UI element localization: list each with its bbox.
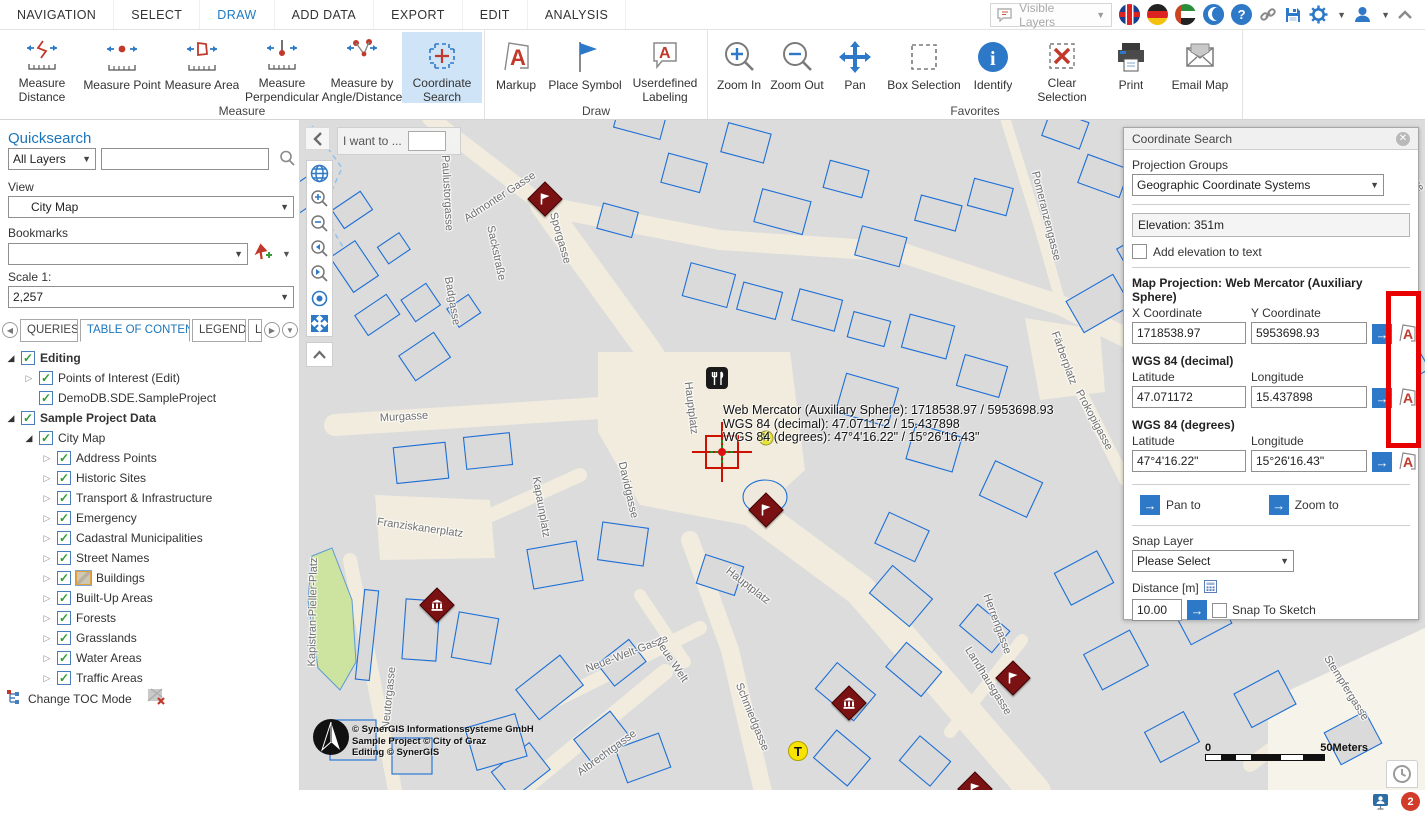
language-arabic-flag-icon[interactable] <box>1175 4 1196 25</box>
toc-item-label: Transport & Infrastructure <box>76 491 212 505</box>
toc-item-label: DemoDB.SDE.SampleProject <box>58 391 216 405</box>
scalebar-bar <box>1205 754 1325 761</box>
scale-bar: 0 50Meters <box>1205 742 1425 761</box>
menu-item-analysis[interactable]: ANALYSIS <box>528 0 626 29</box>
layers-bubble-icon <box>997 8 1013 22</box>
toolbar-scroll-up-button[interactable] <box>306 342 333 367</box>
chevron-down-icon: ▼ <box>1364 180 1379 190</box>
layer-checkbox[interactable]: ✓ <box>57 511 71 525</box>
toc-item-street-names[interactable]: ▷✓Street Names <box>0 548 300 568</box>
session-user-icon[interactable] <box>1372 793 1389 813</box>
toc-item-cadastral-municipalities[interactable]: ▷✓Cadastral Municipalities <box>0 528 300 548</box>
toc-item-label: Forests <box>76 611 116 625</box>
distance-label: Distance [m] <box>1132 581 1199 595</box>
tab-list-icon[interactable]: ▼ <box>282 322 298 338</box>
measure-point-button[interactable]: Measure Point <box>82 32 162 103</box>
layer-checkbox[interactable]: ✓ <box>57 531 71 545</box>
layer-checkbox[interactable]: ✓ <box>21 411 35 425</box>
pan-button[interactable]: Pan <box>826 32 884 103</box>
snap-to-sketch-label: Snap To Sketch <box>1232 603 1316 617</box>
change-toc-mode-button[interactable]: Change TOC Mode <box>6 688 166 709</box>
measure-area-icon <box>185 38 219 76</box>
zoom-in-lens-icon[interactable] <box>307 186 332 211</box>
menu-item-draw[interactable]: DRAW <box>200 0 274 29</box>
ribbon-button-label: Coordinate Search <box>402 76 482 103</box>
toc-item-label: Built-Up Areas <box>76 591 153 605</box>
scale-select[interactable]: 2,257 ▼ <box>8 286 294 308</box>
tab-scroll-right-icon[interactable]: ▶ <box>264 322 280 338</box>
measure-angle-icon <box>345 38 379 74</box>
y-coordinate-label: Y Coordinate <box>1251 306 1367 320</box>
toc-item-label: Editing <box>40 351 81 365</box>
bookmarks-select[interactable]: ▼ <box>8 243 248 265</box>
panel-header: Coordinate Search ✕ <box>1124 128 1418 150</box>
tab-queries[interactable]: QUERIES <box>20 319 78 342</box>
expand-arrow-icon[interactable]: ▷ <box>24 373 34 384</box>
identify-icon: i <box>976 38 1010 76</box>
ribbon-button-label: Zoom In <box>717 78 761 92</box>
chevron-down-icon[interactable]: ▼ <box>1337 10 1346 20</box>
settings-gear-icon[interactable] <box>1309 5 1328 24</box>
toc-item-water-areas[interactable]: ▷✓Water Areas <box>0 648 300 668</box>
chevron-down-icon: ▼ <box>228 249 243 259</box>
layer-checkbox[interactable]: ✓ <box>57 591 71 605</box>
ribbon-button-label: Markup <box>496 78 536 92</box>
toc-item-label: Emergency <box>76 511 137 525</box>
zoom-out-button[interactable]: Zoom Out <box>768 32 826 103</box>
layer-checkbox[interactable]: ✓ <box>57 651 71 665</box>
latitude-label: Latitude <box>1132 434 1246 448</box>
zoom-out-lens-icon[interactable] <box>307 211 332 236</box>
tab-legend[interactable]: LEGEND <box>192 319 246 342</box>
toc-item-traffic-areas[interactable]: ▷✓Traffic Areas <box>0 668 300 688</box>
clear-selection-icon <box>1045 38 1079 74</box>
expand-arrow-icon[interactable]: ▷ <box>42 513 52 524</box>
ribbon-group-measure: Measure Distance Measure Point Measure A… <box>0 30 485 119</box>
toc-item-emergency[interactable]: ▷✓Emergency <box>0 508 300 528</box>
tab-truncated[interactable]: L <box>248 319 262 342</box>
link-icon[interactable] <box>1259 6 1277 24</box>
clear-toc-disabled-icon <box>146 688 166 709</box>
toc-item-label: Buildings <box>96 571 145 585</box>
tab-table-of-content[interactable]: TABLE OF CONTENT <box>80 319 190 342</box>
ribbon-button-label: Measure Point <box>83 78 160 92</box>
layer-swatch <box>76 571 91 585</box>
measure-area-button[interactable]: Measure Area <box>162 32 242 103</box>
projection-groups-select[interactable]: Geographic Coordinate Systems ▼ <box>1132 174 1384 196</box>
zoom-to-button[interactable]: → Zoom to <box>1269 495 1339 515</box>
userdefined-labeling-icon: A <box>648 38 682 74</box>
collapse-ribbon-icon[interactable] <box>1397 10 1413 20</box>
expand-arrow-icon[interactable]: ▷ <box>42 533 52 544</box>
markup-button[interactable]: A Markup <box>487 32 545 103</box>
toc-item-label: Historic Sites <box>76 471 146 485</box>
distance-input[interactable] <box>1132 599 1182 621</box>
toc-item-grasslands[interactable]: ▷✓Grasslands <box>0 628 300 648</box>
collapse-arrow-icon[interactable]: ◢ <box>24 433 34 444</box>
previous-extent-icon[interactable] <box>307 236 332 261</box>
toc-item-label: Water Areas <box>76 651 142 665</box>
menu-item-edit[interactable]: EDIT <box>463 0 528 29</box>
quicksearch-title: Quicksearch <box>8 130 91 147</box>
sidebar-tab-strip: ◀ QUERIES TABLE OF CONTENT LEGEND L ▶ ▼ <box>2 318 298 342</box>
menu-items: NAVIGATIONSELECTDRAWADD DATAEXPORTEDITAN… <box>0 0 626 29</box>
measure-distance-icon <box>25 38 59 74</box>
layer-checkbox[interactable]: ✓ <box>57 471 71 485</box>
toc-item-label: Traffic Areas <box>76 671 143 685</box>
svg-text:A: A <box>659 45 671 62</box>
x-coordinate-label: X Coordinate <box>1132 306 1246 320</box>
toc-item-label: City Map <box>58 431 105 445</box>
status-bar: 2 <box>0 790 1425 814</box>
ribbon-group-label: Measure <box>0 104 484 118</box>
toc-item-city-map[interactable]: ◢✓City Map <box>0 428 300 448</box>
i-want-to-widget[interactable]: I want to ... <box>337 127 461 155</box>
email-map-button[interactable]: Email Map <box>1160 32 1240 103</box>
ribbon-button-label: Clear Selection <box>1022 76 1102 103</box>
coordinate-search-panel: Coordinate Search ✕ Projection Groups Ge… <box>1123 127 1419 620</box>
layer-checkbox[interactable]: ✓ <box>57 551 71 565</box>
projection-groups-label: Projection Groups <box>1132 158 1410 172</box>
full-extent-icon[interactable] <box>307 311 332 336</box>
toc-item-points-of-interest-edit-[interactable]: ▷✓Points of Interest (Edit) <box>0 368 300 388</box>
panel-title: Coordinate Search <box>1132 132 1232 146</box>
longitude-label: Longitude <box>1251 434 1367 448</box>
place-symbol-icon <box>568 38 602 76</box>
menu-item-select[interactable]: SELECT <box>114 0 200 29</box>
arrow-right-icon: → <box>1140 495 1160 515</box>
close-icon[interactable]: ✕ <box>1396 132 1410 146</box>
toc-item-sample-project-data[interactable]: ◢✓Sample Project Data <box>0 408 300 428</box>
toc-item-label: Points of Interest (Edit) <box>58 371 180 385</box>
toc-item-historic-sites[interactable]: ▷✓Historic Sites <box>0 468 300 488</box>
ribbon-button-label: Measure Distance <box>2 76 82 103</box>
language-german-flag-icon[interactable] <box>1147 4 1168 25</box>
svg-text:i: i <box>990 48 996 70</box>
collapse-arrow-icon[interactable]: ◢ <box>6 353 16 364</box>
menu-bar: NAVIGATIONSELECTDRAWADD DATAEXPORTEDITAN… <box>0 0 1425 30</box>
toc-item-editing[interactable]: ◢✓Editing <box>0 348 300 368</box>
bookmarks-label: Bookmarks <box>8 226 68 240</box>
language-english-flag-icon[interactable] <box>1119 4 1140 25</box>
visible-layers-dropdown[interactable]: Visible Layers ▼ <box>990 3 1112 27</box>
svg-text:A: A <box>1403 454 1413 470</box>
time-slider-button[interactable] <box>1386 760 1418 788</box>
collapse-arrow-icon[interactable]: ◢ <box>6 413 16 424</box>
full-globe-icon[interactable] <box>307 161 332 186</box>
measure-point-icon <box>105 38 139 76</box>
chevron-down-icon[interactable]: ▼ <box>282 249 291 259</box>
latitude-label: Latitude <box>1132 370 1246 384</box>
chevron-down-icon: ▼ <box>274 202 289 212</box>
toc-item-forests[interactable]: ▷✓Forests <box>0 608 300 628</box>
email-map-icon <box>1183 38 1217 76</box>
toc-item-label: Sample Project Data <box>40 411 156 425</box>
ribbon-group-favorites: Zoom In Zoom Out Pan Box Selectioni Iden… <box>708 30 1243 119</box>
expand-arrow-icon[interactable]: ▷ <box>42 613 52 624</box>
pan-to-button[interactable]: → Pan to <box>1140 495 1201 515</box>
ribbon-button-label: Userdefined Labeling <box>625 76 705 103</box>
layer-checkbox[interactable]: ✓ <box>57 451 71 465</box>
measure-perpendicular-button[interactable]: Measure Perpendicular <box>242 32 322 103</box>
toc-item-buildings[interactable]: ▷✓Buildings <box>0 568 300 588</box>
apply-distance-arrow-button[interactable]: → <box>1187 600 1207 620</box>
arrow-right-icon: → <box>1269 495 1289 515</box>
scalebar-start: 0 <box>1205 742 1211 754</box>
layer-checkbox[interactable]: ✓ <box>21 351 35 365</box>
toc-item-label: Address Points <box>76 451 157 465</box>
map-navigation-toolbar <box>306 160 333 337</box>
i-want-to-label: I want to ... <box>343 134 402 148</box>
view-label: View <box>8 180 34 194</box>
box-selection-button[interactable]: Box Selection <box>884 32 964 103</box>
coordinate-search-icon <box>425 38 459 74</box>
print-icon <box>1114 38 1148 76</box>
menu-item-add-data[interactable]: ADD DATA <box>275 0 375 29</box>
zoom-in-icon <box>722 38 756 76</box>
ribbon-button-label: Measure by Angle/Distance <box>322 76 402 103</box>
center-map-icon[interactable] <box>307 286 332 311</box>
layer-filter-select[interactable]: All Layers ▼ <box>8 148 96 170</box>
toc-item-label: Street Names <box>76 551 149 565</box>
measure-perpendicular-icon <box>265 38 299 74</box>
ribbon-button-label: Box Selection <box>887 78 960 92</box>
layer-checkbox[interactable]: ✓ <box>39 391 53 405</box>
toc-mode-icon <box>6 689 22 708</box>
ribbon-group-label: Favorites <box>708 104 1242 118</box>
wgs84-degrees-heading: WGS 84 (degrees) <box>1132 418 1410 432</box>
view-select[interactable]: City Map ▼ <box>8 196 294 218</box>
ribbon-button-label: Email Map <box>1172 78 1229 92</box>
ribbon-button-label: Measure Area <box>165 78 240 92</box>
ribbon-button-label: Measure Perpendicular <box>242 76 322 103</box>
layer-checkbox[interactable]: ✓ <box>57 631 71 645</box>
create-text-markup-icon[interactable]: A <box>1397 450 1419 472</box>
table-of-content-tree: ◢✓Editing▷✓Points of Interest (Edit)✓Dem… <box>0 348 300 688</box>
wgs84-decimal-heading: WGS 84 (decimal) <box>1132 354 1410 368</box>
ribbon-group-draw: A Markup Place SymbolA Userdefined Label… <box>485 30 708 119</box>
longitude-label: Longitude <box>1251 370 1367 384</box>
add-elevation-label: Add elevation to text <box>1153 245 1262 259</box>
chevron-down-icon: ▼ <box>76 154 91 164</box>
left-sidebar: Quicksearch All Layers ▼ View City Map ▼… <box>0 120 300 790</box>
layer-checkbox[interactable]: ✓ <box>57 571 71 585</box>
menubar-right-tools: Visible Layers ▼ ? ▼ ▼ <box>990 3 1425 27</box>
expand-arrow-icon[interactable]: ▷ <box>42 473 52 484</box>
layer-checkbox[interactable]: ✓ <box>39 431 53 445</box>
ribbon-button-label: Print <box>1119 78 1144 92</box>
expand-arrow-icon[interactable]: ▷ <box>42 573 52 584</box>
toc-item-demodb-sde-sampleproject[interactable]: ✓DemoDB.SDE.SampleProject <box>0 388 300 408</box>
longitude-decimal-input[interactable] <box>1251 386 1367 408</box>
chevron-down-icon: ▼ <box>1096 10 1105 20</box>
svg-text:A: A <box>510 45 526 70</box>
box-selection-icon <box>907 38 941 76</box>
notification-badge: 2 <box>1401 792 1420 811</box>
ribbon-button-label: Place Symbol <box>548 78 621 92</box>
change-toc-mode-label: Change TOC Mode <box>28 692 132 706</box>
save-icon[interactable] <box>1284 6 1302 24</box>
layer-checkbox[interactable]: ✓ <box>39 371 53 385</box>
search-icon[interactable] <box>278 149 296 170</box>
ribbon-button-label: Zoom Out <box>770 78 823 92</box>
annotation-rectangle <box>1386 291 1421 448</box>
zoom-out-icon <box>780 38 814 76</box>
add-elevation-checkbox[interactable] <box>1132 244 1147 259</box>
visible-layers-label: Visible Layers <box>1019 1 1090 29</box>
latitude-decimal-input[interactable] <box>1132 386 1246 408</box>
pan-icon <box>838 38 872 76</box>
snap-to-sketch-checkbox[interactable] <box>1212 603 1227 618</box>
calculator-icon[interactable] <box>1204 580 1217 596</box>
snap-layer-label: Snap Layer <box>1132 534 1410 548</box>
ribbon-button-label: Pan <box>844 78 865 92</box>
scalebar-end: 50Meters <box>1320 742 1368 754</box>
toc-item-label: Cadastral Municipalities <box>76 531 203 545</box>
layer-checkbox[interactable]: ✓ <box>57 611 71 625</box>
expand-arrow-icon[interactable]: ▷ <box>42 493 52 504</box>
chevron-down-icon[interactable]: ▼ <box>1381 10 1390 20</box>
expand-arrow-icon[interactable]: ▷ <box>42 593 52 604</box>
latitude-degrees-input[interactable] <box>1132 450 1246 472</box>
elevation-display: Elevation: 351m <box>1132 213 1410 237</box>
expand-arrow-icon[interactable]: ▷ <box>42 653 52 664</box>
layer-checkbox[interactable]: ✓ <box>57 671 71 685</box>
measure-by-angle-distance-button[interactable]: Measure by Angle/Distance <box>322 32 402 103</box>
toc-item-address-points[interactable]: ▷✓Address Points <box>0 448 300 468</box>
print-button[interactable]: Print <box>1102 32 1160 103</box>
place-symbol-button[interactable]: Place Symbol <box>545 32 625 103</box>
toc-item-built-up-areas[interactable]: ▷✓Built-Up Areas <box>0 588 300 608</box>
layer-checkbox[interactable]: ✓ <box>57 491 71 505</box>
expand-arrow-icon[interactable]: ▷ <box>42 633 52 644</box>
toc-item-label: Grasslands <box>76 631 137 645</box>
measure-distance-button[interactable]: Measure Distance <box>2 32 82 103</box>
menu-item-export[interactable]: EXPORT <box>374 0 463 29</box>
chevron-down-icon: ▼ <box>1274 556 1289 566</box>
scale-label: Scale 1: <box>8 270 51 284</box>
toc-item-transport-infrastructure[interactable]: ▷✓Transport & Infrastructure <box>0 488 300 508</box>
i-want-to-input[interactable] <box>408 131 446 151</box>
markup-icon: A <box>499 38 533 76</box>
expand-arrow-icon[interactable]: ▷ <box>42 553 52 564</box>
menu-item-navigation[interactable]: NAVIGATION <box>0 0 114 29</box>
zoom-in-button[interactable]: Zoom In <box>710 32 768 103</box>
ribbon-toolbar: Measure Distance Measure Point Measure A… <box>0 30 1425 120</box>
expand-arrow-icon[interactable]: ▷ <box>42 673 52 684</box>
help-icon[interactable]: ? <box>1231 4 1252 25</box>
crescent-icon[interactable] <box>1203 4 1224 25</box>
x-coordinate-input[interactable] <box>1132 322 1246 344</box>
coordinate-search-button[interactable]: Coordinate Search <box>402 32 482 103</box>
expand-arrow-icon[interactable]: ▷ <box>42 453 52 464</box>
map-projection-heading: Map Projection: Web Mercator (Auxiliary … <box>1132 276 1410 304</box>
snap-layer-select[interactable]: Please Select ▼ <box>1132 550 1294 572</box>
longitude-degrees-input[interactable] <box>1251 450 1367 472</box>
apply-degrees-arrow-button[interactable]: → <box>1372 452 1392 472</box>
userdefined-labeling-button[interactable]: A Userdefined Labeling <box>625 32 705 103</box>
user-icon[interactable] <box>1353 5 1372 24</box>
chevron-down-icon: ▼ <box>274 292 289 302</box>
next-extent-icon[interactable] <box>307 261 332 286</box>
north-arrow-compass <box>312 718 350 759</box>
clear-selection-button[interactable]: Clear Selection <box>1022 32 1102 103</box>
collapse-sidebar-button[interactable] <box>305 127 330 150</box>
add-bookmark-icon[interactable] <box>254 242 274 265</box>
y-coordinate-input[interactable] <box>1251 322 1367 344</box>
quicksearch-input[interactable] <box>101 148 269 170</box>
ribbon-button-label: Identify <box>974 78 1013 92</box>
tab-scroll-left-icon[interactable]: ◀ <box>2 322 18 338</box>
ribbon-group-label: Draw <box>485 104 707 118</box>
identify-button[interactable]: i Identify <box>964 32 1022 103</box>
